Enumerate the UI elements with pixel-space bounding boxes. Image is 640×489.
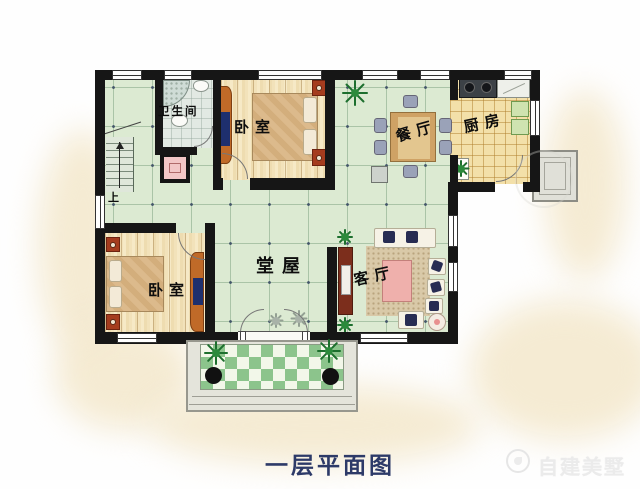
staircase-arrow-head bbox=[116, 138, 124, 149]
nightstand-top-1 bbox=[312, 80, 326, 96]
wall-bed1-bottom-b bbox=[250, 178, 335, 190]
halo-bottom-right bbox=[470, 300, 640, 440]
wall-bed1-right bbox=[325, 70, 335, 190]
wall-bath-bottom bbox=[155, 147, 197, 155]
window-living-right-2 bbox=[448, 262, 458, 292]
dining-chair-right-2 bbox=[439, 140, 452, 155]
armchair-3-pillow bbox=[429, 301, 439, 311]
dining-cabinet bbox=[371, 166, 388, 183]
wall-bed2-top bbox=[95, 223, 176, 233]
porch-step-line-1 bbox=[192, 396, 352, 397]
window-top-stairs bbox=[112, 70, 142, 80]
wall-kitchen-left-upper bbox=[450, 70, 458, 100]
tv-cabinet bbox=[338, 247, 353, 315]
label-hall: 堂屋 bbox=[256, 257, 308, 275]
duct-shaft bbox=[160, 153, 190, 183]
stove bbox=[459, 77, 497, 98]
floor-plan-page: 上 bbox=[0, 0, 640, 489]
window-kitchen-right bbox=[530, 100, 540, 136]
window-bedroom-bottom bbox=[117, 333, 157, 343]
label-bedroom-top: 卧室 bbox=[234, 121, 276, 136]
stairs-up-label: 上 bbox=[108, 193, 119, 204]
window-top-dining-2 bbox=[420, 70, 450, 80]
sofa-pillow-2 bbox=[406, 231, 418, 243]
wall-bed1-left bbox=[213, 70, 221, 190]
kitchen-shelf-2 bbox=[511, 119, 529, 135]
living-plant-bottom-icon bbox=[337, 317, 353, 333]
dining-plant-icon bbox=[342, 80, 368, 106]
wall-kitchen-bottom-left bbox=[458, 182, 495, 192]
dining-chair-bottom bbox=[403, 165, 418, 178]
wall-bed2-right bbox=[205, 223, 215, 344]
wardrobe-bottom-stripe bbox=[193, 278, 203, 305]
brand-logo-leaf bbox=[514, 457, 522, 465]
porch-column-left bbox=[205, 367, 222, 384]
bed-bottom-pillow-2 bbox=[109, 286, 122, 308]
brand-watermark: 自建美墅 bbox=[538, 451, 626, 480]
dining-chair-right-1 bbox=[439, 118, 452, 133]
toilet bbox=[193, 80, 209, 92]
nightstand-bottom-2 bbox=[106, 314, 120, 330]
porch-plant-left-icon bbox=[203, 341, 229, 365]
window-top-dining-1 bbox=[362, 70, 398, 80]
nightstand-bottom-1 bbox=[106, 237, 120, 252]
entry-decor-plant-1 bbox=[268, 313, 283, 328]
porch-plant-right-icon bbox=[316, 339, 342, 363]
wall-kitchen-left-lower bbox=[450, 155, 458, 192]
burner-1 bbox=[464, 82, 475, 93]
dining-chair-left-2 bbox=[374, 140, 387, 155]
window-living-bottom bbox=[360, 333, 408, 343]
caption-title: 一层平面图 bbox=[180, 446, 480, 480]
bed-top-pillow-1 bbox=[303, 97, 317, 123]
window-left-hall bbox=[95, 195, 105, 229]
kitchen-counter bbox=[497, 77, 530, 98]
sofa-pillow-1 bbox=[383, 231, 395, 243]
kitchen-shelf-1 bbox=[511, 101, 529, 117]
bed-bottom-pillow-1 bbox=[109, 260, 122, 282]
wall-living-partition bbox=[327, 247, 337, 344]
duct-inner bbox=[169, 163, 181, 173]
watermark-ring bbox=[515, 150, 573, 208]
sofa-bottom-pillow bbox=[405, 314, 417, 326]
brand-logo-icon bbox=[506, 449, 530, 473]
side-table-lamp bbox=[434, 319, 440, 325]
nightstand-top-2 bbox=[312, 149, 326, 166]
living-plant-top-icon bbox=[337, 229, 353, 245]
counter-line bbox=[503, 83, 525, 94]
dining-chair-left-1 bbox=[374, 118, 387, 133]
window-top-bath bbox=[164, 70, 192, 80]
porch-step-line-2 bbox=[189, 404, 355, 405]
window-living-right-1 bbox=[448, 215, 458, 247]
tv-set bbox=[341, 265, 351, 295]
label-bathroom: 卫生间 bbox=[158, 107, 199, 119]
wardrobe-top-stripe bbox=[221, 112, 230, 146]
dining-chair-top bbox=[403, 95, 418, 108]
burner-2 bbox=[481, 82, 492, 93]
wall-bed1-bottom-a bbox=[213, 178, 223, 190]
window-top-bedroom bbox=[258, 70, 322, 80]
label-bedroom-bottom: 卧室 bbox=[148, 284, 190, 299]
side-table-round bbox=[428, 313, 446, 331]
window-top-kitchen bbox=[504, 70, 532, 80]
porch-column-right bbox=[322, 368, 339, 385]
